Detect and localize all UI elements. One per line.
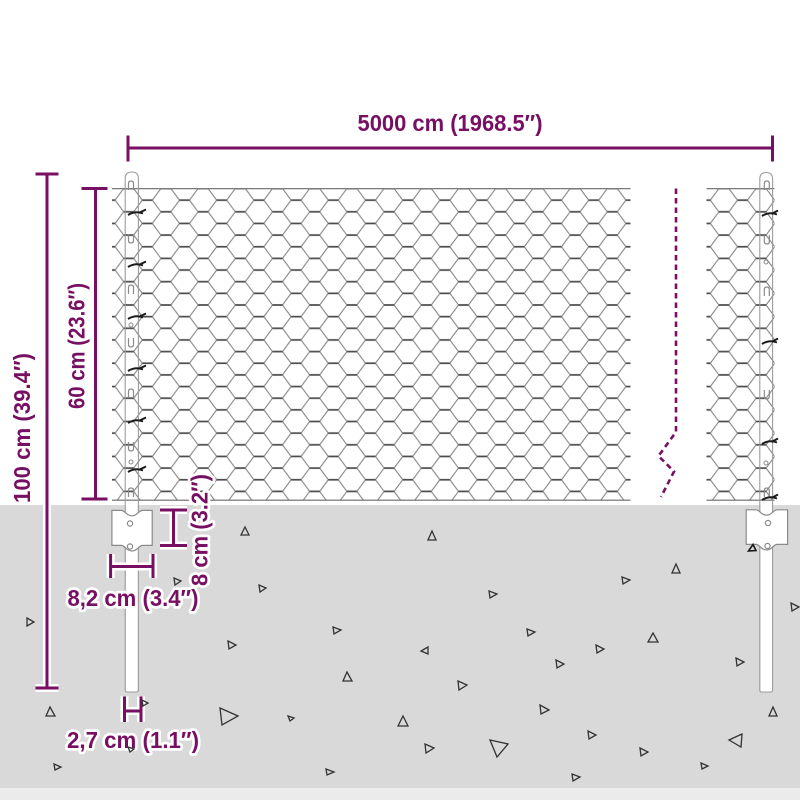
svg-text:8 cm (3.2″): 8 cm (3.2″) [187, 474, 213, 586]
svg-text:100 cm (39.4″): 100 cm (39.4″) [9, 353, 35, 503]
svg-text:5000 cm (1968.5″): 5000 cm (1968.5″) [358, 110, 543, 136]
svg-text:60 cm (23.6″): 60 cm (23.6″) [64, 283, 90, 409]
svg-text:8,2 cm (3.4″): 8,2 cm (3.4″) [68, 585, 199, 611]
